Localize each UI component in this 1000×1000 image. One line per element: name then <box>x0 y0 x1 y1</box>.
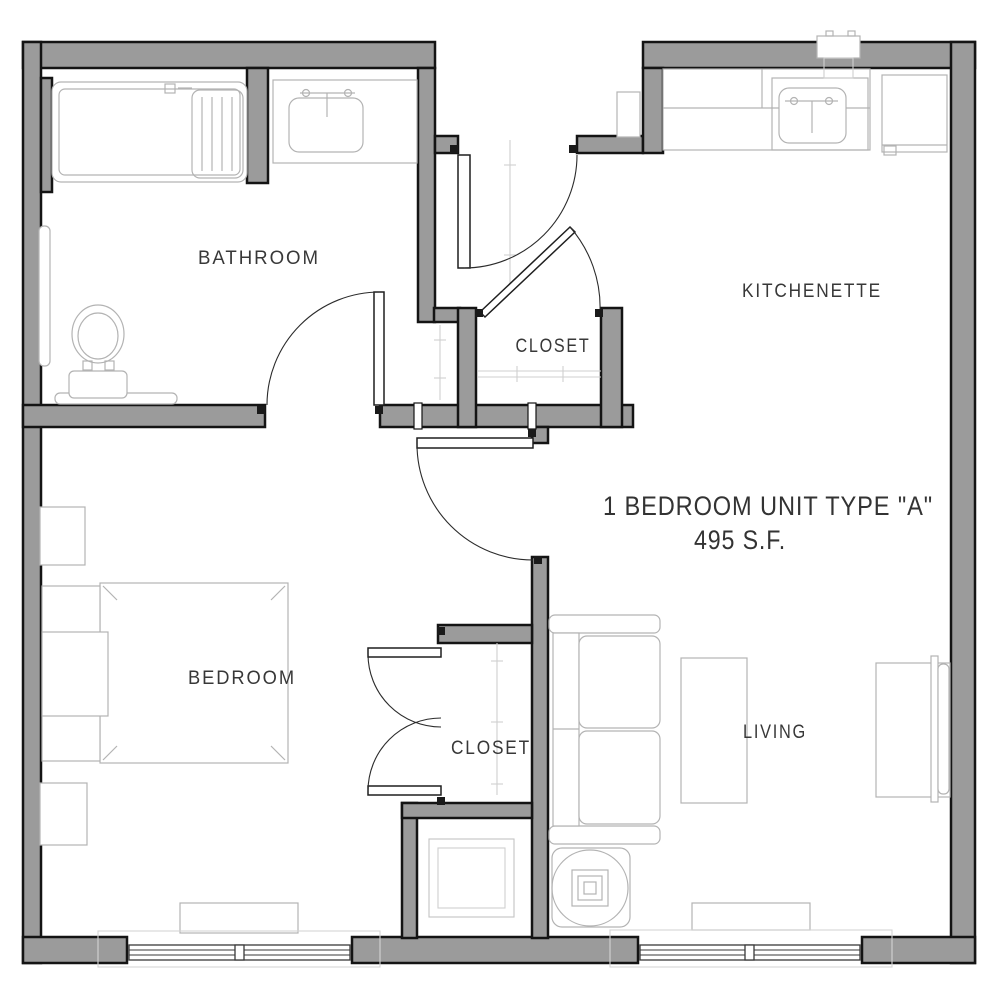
refrigerator <box>882 75 947 155</box>
entry-closet-door <box>480 227 600 317</box>
room-label-bathroom: BATHROOM <box>198 248 320 269</box>
floor-plan-drawing: BATHROOM KITCHENETTE CLOSET BEDROOM CLOS… <box>0 0 1000 1000</box>
bench <box>692 903 810 930</box>
nightstand <box>40 783 87 845</box>
bathroom-fixtures <box>39 80 417 404</box>
bedroom-door-jamb <box>528 403 536 429</box>
side-table-lamp <box>552 848 630 927</box>
room-label-entry-closet: CLOSET <box>516 336 591 357</box>
entry-niche <box>617 92 640 137</box>
dresser <box>180 903 298 933</box>
bathroom-door <box>267 292 384 405</box>
nightstand <box>40 507 85 565</box>
living-window <box>610 930 892 967</box>
room-label-bedroom: BEDROOM <box>188 668 296 689</box>
utility-unit <box>429 839 514 917</box>
floor-plan: BATHROOM KITCHENETTE CLOSET BEDROOM CLOS… <box>0 0 1000 1000</box>
plan-title: 1 BEDROOM UNIT TYPE "A" <box>603 491 933 521</box>
grab-bar <box>39 226 50 366</box>
bedroom-window <box>98 931 380 967</box>
room-label-kitchenette: KITCHENETTE <box>742 281 882 302</box>
entry-door <box>458 155 577 268</box>
coffee-table <box>681 658 747 803</box>
vanity-sink <box>273 80 417 163</box>
bedroom-furniture <box>40 507 298 933</box>
room-label-living: LIVING <box>743 722 807 743</box>
toilet <box>55 305 177 404</box>
closet-double-doors <box>368 648 441 795</box>
bedroom-door-jamb <box>414 403 422 429</box>
living-furniture <box>549 615 950 930</box>
plan-area: 495 S.F. <box>694 525 786 555</box>
bathtub <box>52 82 247 182</box>
bedroom-door <box>417 438 533 560</box>
sofa <box>549 615 660 844</box>
room-label-bedroom-closet: CLOSET <box>451 738 531 759</box>
tv-console <box>876 656 950 802</box>
